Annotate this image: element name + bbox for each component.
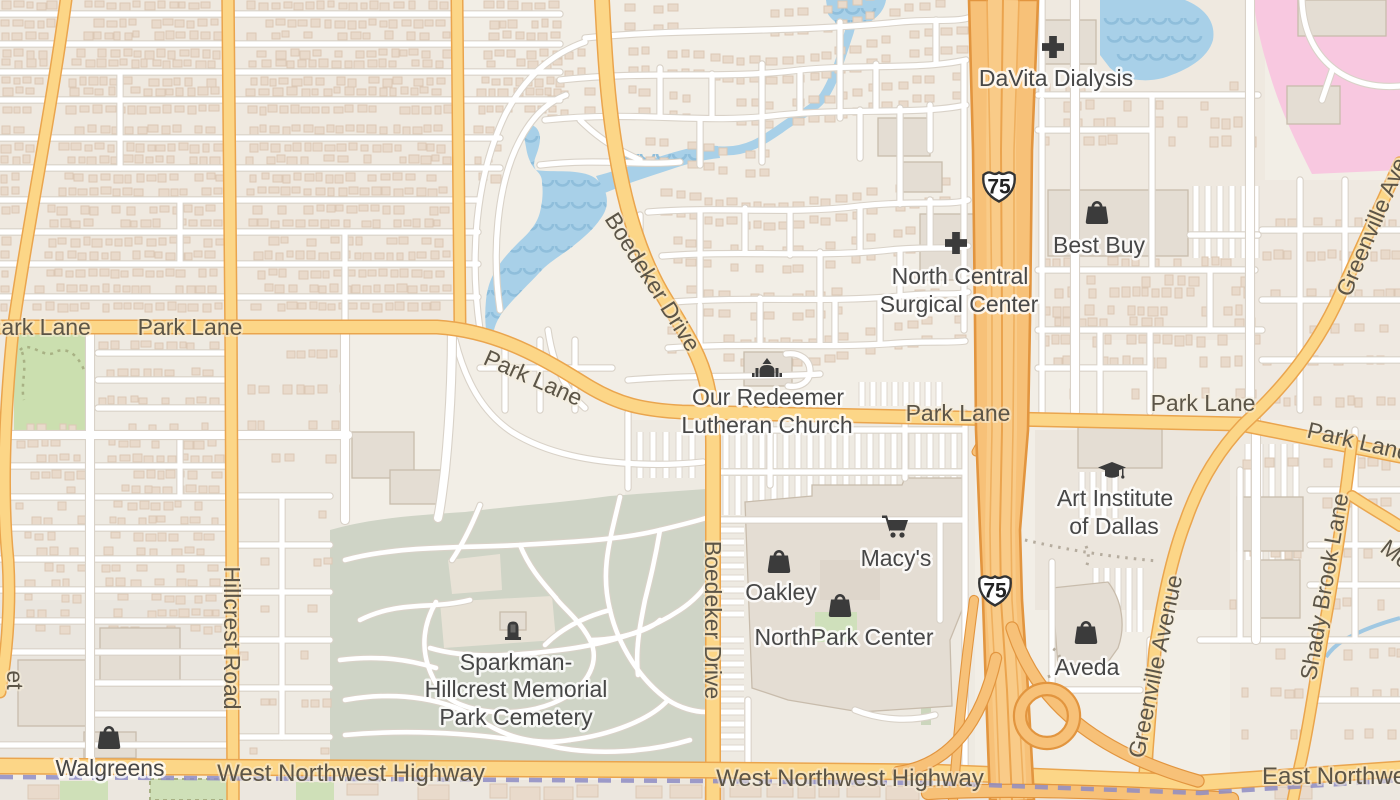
svg-text:Boedeker Drive: Boedeker Drive — [700, 541, 726, 700]
svg-text:East Northwest Hig: East Northwest Hig — [1262, 763, 1400, 790]
svg-text:DaVita Dialysis: DaVita Dialysis — [979, 65, 1133, 91]
svg-text:Park Lane: Park Lane — [138, 314, 243, 340]
svg-text:Lutheran Church: Lutheran Church — [681, 412, 852, 438]
svg-text:75: 75 — [987, 176, 1011, 199]
svg-text:West Northwest Highway: West Northwest Highway — [217, 760, 485, 787]
svg-text:Park Lane: Park Lane — [906, 400, 1011, 426]
svg-text:Art Institute: Art Institute — [1057, 485, 1173, 511]
svg-text:75: 75 — [983, 580, 1007, 603]
svg-text:Best Buy: Best Buy — [1053, 232, 1146, 258]
svg-text:Aveda: Aveda — [1055, 654, 1120, 680]
svg-text:of Dallas: of Dallas — [1069, 513, 1158, 539]
svg-text:Sparkman-: Sparkman- — [460, 649, 572, 675]
svg-text:Hillcrest Road: Hillcrest Road — [219, 566, 245, 709]
svg-text:et: et — [2, 670, 28, 690]
svg-text:Oakley: Oakley — [745, 579, 817, 605]
svg-text:NorthPark Center: NorthPark Center — [755, 624, 934, 650]
svg-text:Walgreens: Walgreens — [55, 755, 164, 781]
svg-text:Macy's: Macy's — [861, 545, 932, 571]
svg-text:West Northwest Highway: West Northwest Highway — [716, 765, 984, 792]
svg-text:Hillcrest Memorial: Hillcrest Memorial — [425, 676, 608, 702]
svg-text:Park Lane: Park Lane — [1151, 390, 1256, 416]
svg-text:Park Lane: Park Lane — [0, 314, 91, 340]
svg-text:Our Redeemer: Our Redeemer — [692, 384, 844, 410]
svg-text:Surgical Center: Surgical Center — [880, 291, 1039, 317]
svg-text:Park Cemetery: Park Cemetery — [439, 704, 593, 730]
svg-text:North Central: North Central — [892, 263, 1029, 289]
